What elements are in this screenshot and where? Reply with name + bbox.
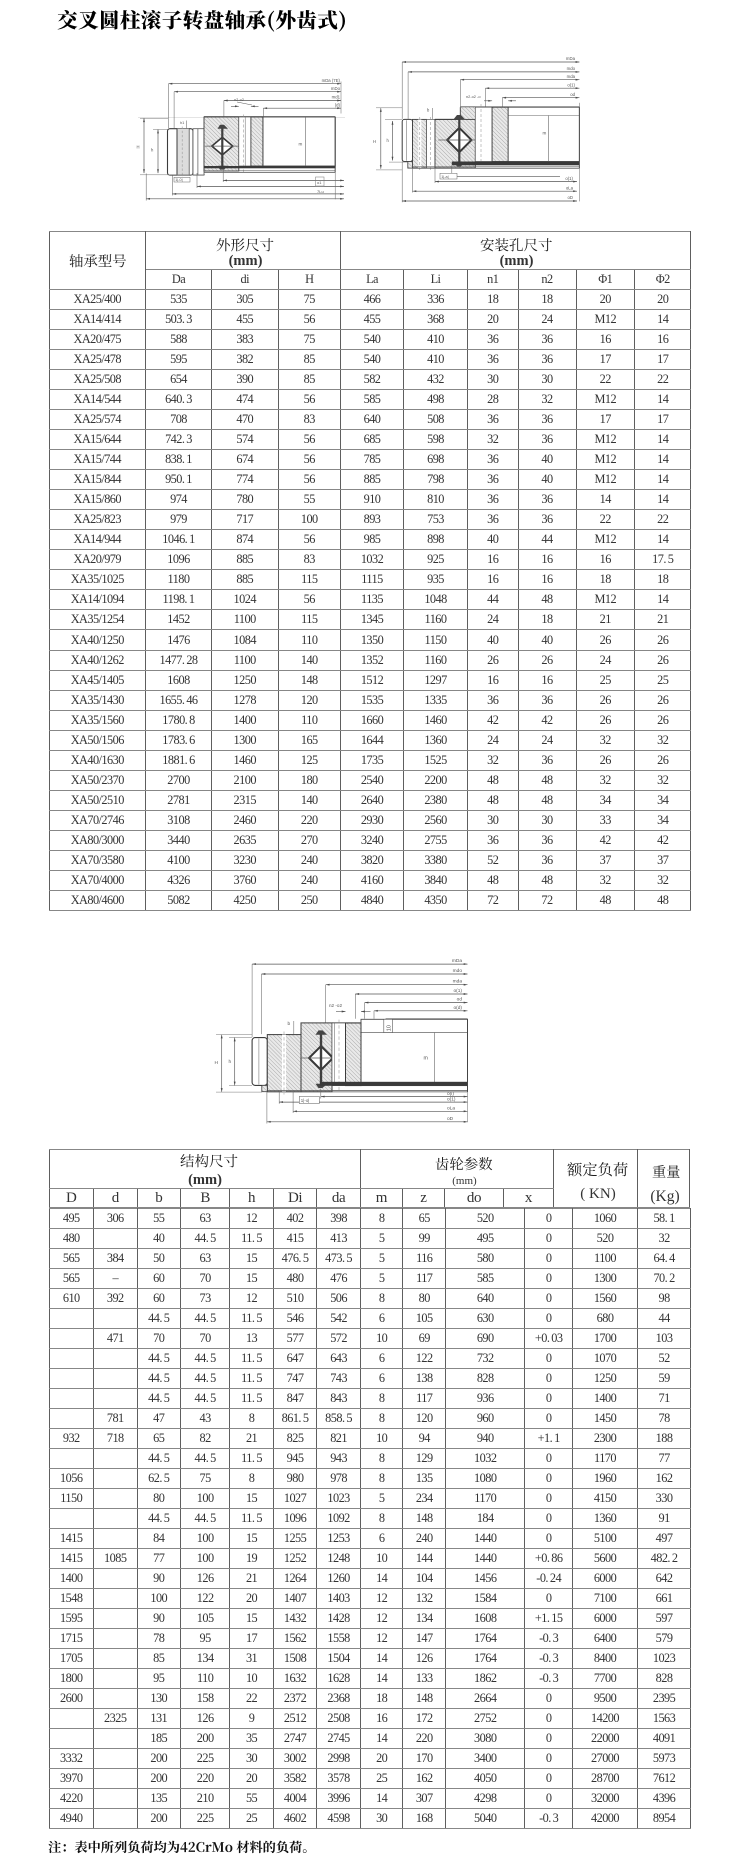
svg-text:o(1): o(1) bbox=[565, 176, 573, 181]
svg-text:od: od bbox=[457, 997, 463, 1003]
svg-text:h: h bbox=[151, 148, 154, 153]
svg-text:m: m bbox=[424, 1056, 428, 1062]
svg-text:oLa: oLa bbox=[566, 185, 574, 190]
svg-text:md1: md1 bbox=[332, 95, 341, 100]
svg-text:o1: o1 bbox=[317, 180, 322, 185]
svg-text:mdo: mdo bbox=[453, 968, 463, 974]
svg-text:o(1): o(1) bbox=[447, 1096, 456, 1102]
svg-text:od: od bbox=[570, 92, 575, 97]
svg-text:h1: h1 bbox=[180, 120, 184, 125]
svg-text:m: m bbox=[543, 131, 547, 136]
svg-text:mDa: mDa bbox=[452, 958, 462, 964]
svg-text:o(1): o(1) bbox=[567, 82, 575, 87]
svg-text:10: 10 bbox=[387, 1025, 393, 1031]
svg-text:o(1): o(1) bbox=[453, 988, 462, 994]
svg-text:oD: oD bbox=[447, 1116, 454, 1122]
svg-text:o(i): o(i) bbox=[447, 1091, 454, 1097]
svg-text:mDo: mDo bbox=[331, 86, 341, 91]
svg-text:h: h bbox=[229, 1059, 232, 1065]
svg-text:(d): (d) bbox=[335, 102, 341, 107]
svg-text:h: h bbox=[387, 138, 390, 143]
svg-text:oLa: oLa bbox=[447, 1106, 455, 1112]
svg-text:b: b bbox=[288, 1021, 291, 1027]
svg-text:mdo: mdo bbox=[567, 66, 576, 71]
svg-text:b: b bbox=[427, 108, 430, 113]
svg-text:mDa (7E): mDa (7E) bbox=[322, 78, 341, 83]
svg-text:m: m bbox=[299, 142, 303, 147]
svg-text:H: H bbox=[137, 145, 140, 150]
svg-text:n2-o2 -o: n2-o2 -o bbox=[466, 94, 481, 99]
svg-text:oD: oD bbox=[568, 195, 574, 200]
svg-text:H: H bbox=[215, 1060, 219, 1066]
svg-text:1|-o|: 1|-o| bbox=[301, 1098, 310, 1103]
svg-text:7Lu: 7Lu bbox=[317, 189, 324, 194]
svg-text:n2 -o2: n2 -o2 bbox=[329, 1003, 342, 1008]
svg-text:n2-o2: n2-o2 bbox=[234, 97, 244, 102]
svg-text:H: H bbox=[373, 139, 376, 144]
svg-text:1|-0|: 1|-0| bbox=[175, 178, 182, 182]
svg-text:mda: mda bbox=[453, 979, 463, 985]
svg-text:mDa: mDa bbox=[566, 56, 576, 61]
svg-text:1|-a|: 1|-a| bbox=[441, 175, 448, 179]
svg-text:mda: mda bbox=[567, 74, 576, 79]
svg-text:o(d): o(d) bbox=[453, 1005, 462, 1011]
